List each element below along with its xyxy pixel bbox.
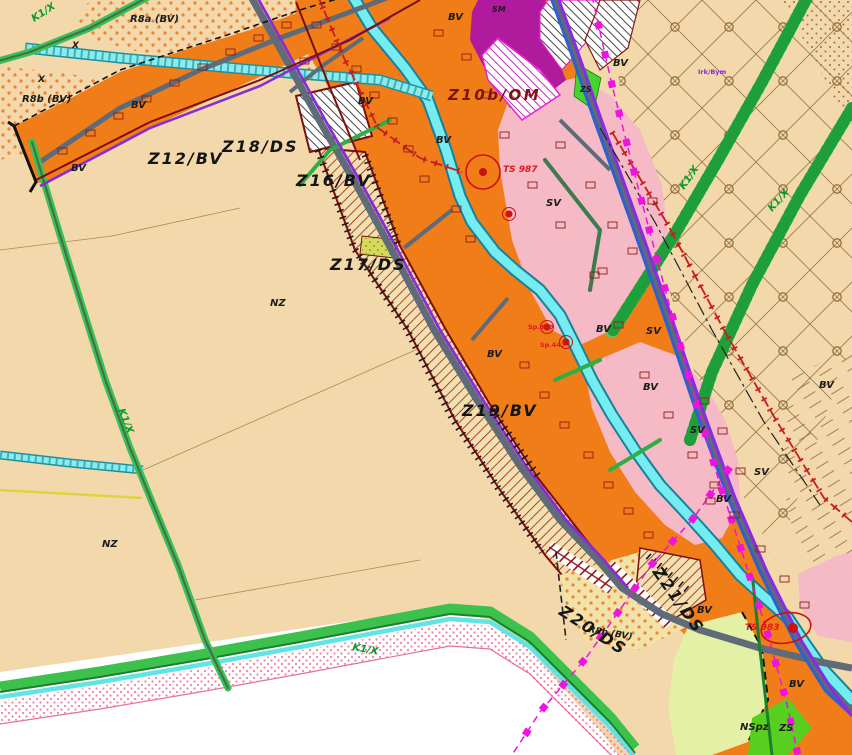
label-bv-3: BV bbox=[436, 135, 452, 146]
label-sp447: Sp.447 bbox=[540, 341, 565, 349]
label-ts987: TS 987 bbox=[503, 165, 538, 175]
label-bv-2: BV bbox=[358, 96, 374, 107]
zone-label-z18-ds: Z18/DS bbox=[221, 137, 299, 156]
zoning-map-canvas[interactable]: K1/X K1/X K1/X K1/X K1/X R8a (BV) X X R8… bbox=[0, 0, 852, 755]
label-sv-2: SV bbox=[646, 326, 662, 337]
label-bv-9: BV bbox=[819, 380, 835, 391]
label-nz-2: NZ bbox=[102, 539, 118, 550]
label-ts983: TS 983 bbox=[745, 623, 780, 633]
zone-label-z12-bv: Z12/BV bbox=[147, 149, 224, 168]
label-bv-4: BV bbox=[613, 58, 629, 69]
label-sv-1: SV bbox=[546, 198, 562, 209]
label-bv-nw1: BV bbox=[131, 100, 147, 111]
label-x-2: X bbox=[37, 75, 46, 85]
label-sv-4: SV bbox=[754, 467, 770, 478]
zone-label-z16-bv: Z16/BV bbox=[295, 171, 372, 190]
label-sm: SM bbox=[492, 5, 506, 14]
label-bv-1: BV bbox=[448, 12, 464, 23]
label-r8a: R8a (BV) bbox=[130, 14, 179, 25]
zone-label-z17-ds: Z17/DS bbox=[329, 255, 407, 274]
label-r8b: R8b (BV) bbox=[22, 94, 71, 105]
label-parcel: Irk/Bym bbox=[698, 68, 727, 76]
label-bv-5: BV bbox=[487, 349, 503, 360]
label-sp349: Sp.349 bbox=[528, 323, 554, 331]
label-zs-1: ZS bbox=[579, 85, 592, 94]
label-nz-1: NZ bbox=[270, 298, 286, 309]
label-bv-10: BV bbox=[697, 605, 713, 616]
label-bv-6: BV bbox=[596, 324, 612, 335]
label-x-1: X bbox=[71, 41, 80, 51]
zone-label-z19-bv: Z19/BV bbox=[461, 401, 538, 420]
zone-label-z10b-om: Z10b/OM bbox=[447, 86, 541, 104]
label-bv-11: BV bbox=[789, 679, 805, 690]
label-bv-nw2: BV bbox=[71, 163, 87, 174]
label-sv-3: SV bbox=[690, 425, 706, 436]
label-zs-2: ZS bbox=[778, 723, 793, 734]
label-bv-8: BV bbox=[716, 494, 732, 505]
label-nspz: NSpz bbox=[740, 722, 769, 733]
label-bv-7: BV bbox=[643, 382, 659, 393]
